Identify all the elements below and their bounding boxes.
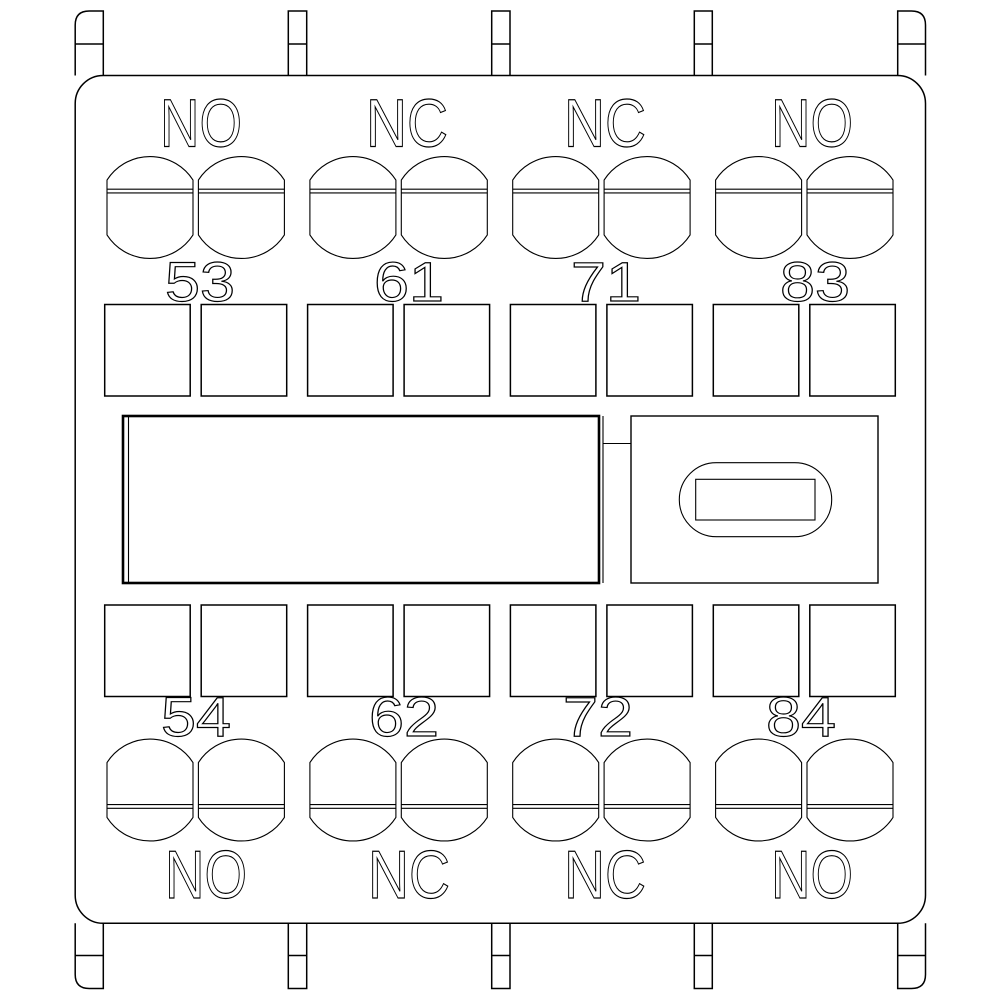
terminal-number-53: 53 bbox=[165, 250, 235, 313]
terminal-62-screw-right bbox=[401, 739, 487, 841]
wire-entry-53-right bbox=[201, 305, 287, 397]
wire-entries-top-row bbox=[105, 305, 896, 397]
contact-label-bottom-2: NC bbox=[368, 837, 450, 913]
label-field bbox=[123, 416, 599, 583]
wire-entry-83-right bbox=[810, 305, 896, 397]
terminal-number-54: 54 bbox=[161, 685, 231, 748]
contact-labels-top: NO NC NC NO bbox=[160, 86, 853, 162]
wire-entry-62-right bbox=[404, 605, 490, 697]
mounting-tabs-bottom bbox=[75, 923, 925, 988]
actuator-housing bbox=[631, 416, 878, 583]
wire-entries-bottom-row bbox=[105, 605, 896, 697]
terminal-72-screw-right bbox=[604, 739, 690, 841]
contact-label-bottom-1: NO bbox=[165, 837, 247, 913]
terminal-53-screw-right bbox=[198, 157, 284, 259]
wire-entry-71-right bbox=[607, 305, 693, 397]
mounting-tabs-top bbox=[75, 11, 925, 76]
contact-label-top-4: NO bbox=[771, 86, 853, 162]
terminal-83-screw-left bbox=[716, 157, 802, 259]
wire-entry-84-right bbox=[810, 605, 896, 697]
contact-label-bottom-3: NC bbox=[564, 837, 646, 913]
terminal-number-84: 84 bbox=[766, 685, 836, 748]
terminal-number-71: 71 bbox=[571, 250, 641, 313]
terminal-84-screw-right bbox=[807, 739, 893, 841]
wire-entry-71-left bbox=[510, 305, 596, 397]
terminal-71-screw-right bbox=[604, 157, 690, 259]
terminal-61-screw-right bbox=[401, 157, 487, 259]
contact-label-bottom-4: NO bbox=[771, 837, 853, 913]
wire-entry-53-left bbox=[105, 305, 191, 397]
terminal-62-screw-left bbox=[310, 739, 396, 841]
wire-entry-84-left bbox=[713, 605, 799, 697]
terminal-number-72: 72 bbox=[563, 685, 633, 748]
screw-terminals-top-row bbox=[107, 157, 893, 259]
wire-entry-54-right bbox=[201, 605, 287, 697]
contact-labels-bottom: NO NC NC NO bbox=[165, 837, 853, 913]
wire-entry-61-left bbox=[308, 305, 394, 397]
screw-terminals-bottom-row bbox=[107, 739, 893, 841]
terminal-84-screw-left bbox=[716, 739, 802, 841]
housing-body-outline bbox=[75, 76, 925, 924]
wire-entry-72-right bbox=[607, 605, 693, 697]
terminal-71-screw-left bbox=[513, 157, 599, 259]
terminal-72-screw-left bbox=[513, 739, 599, 841]
contact-label-top-1: NO bbox=[160, 86, 242, 162]
contact-label-top-2: NC bbox=[366, 86, 448, 162]
terminal-61-screw-left bbox=[310, 157, 396, 259]
terminal-number-62: 62 bbox=[369, 685, 439, 748]
terminal-54-screw-right bbox=[198, 739, 284, 841]
wire-entry-61-right bbox=[404, 305, 490, 397]
terminal-number-83: 83 bbox=[780, 250, 850, 313]
wire-entry-83-left bbox=[713, 305, 799, 397]
terminal-numbers-bottom: 54 62 72 84 bbox=[161, 685, 836, 748]
terminal-numbers-top: 53 61 71 83 bbox=[165, 250, 850, 313]
contact-label-top-3: NC bbox=[564, 86, 646, 162]
wire-entry-72-left bbox=[510, 605, 596, 697]
auxiliary-contact-block-front-view: NO NC NC NO 53 61 71 83 54 62 72 84 NO N… bbox=[0, 0, 1000, 1000]
actuator-slot-inner bbox=[696, 479, 815, 520]
wire-entry-62-left bbox=[308, 605, 394, 697]
contact-block-drawing-canvas: NO NC NC NO 53 61 71 83 54 62 72 84 NO N… bbox=[0, 0, 1000, 1000]
terminal-54-screw-left bbox=[107, 739, 193, 841]
center-section bbox=[123, 416, 878, 583]
terminal-53-screw-left bbox=[107, 157, 193, 259]
terminal-number-61: 61 bbox=[374, 250, 444, 313]
actuator-slot-outer bbox=[679, 463, 831, 537]
terminal-83-screw-right bbox=[807, 157, 893, 259]
wire-entry-54-left bbox=[105, 605, 191, 697]
